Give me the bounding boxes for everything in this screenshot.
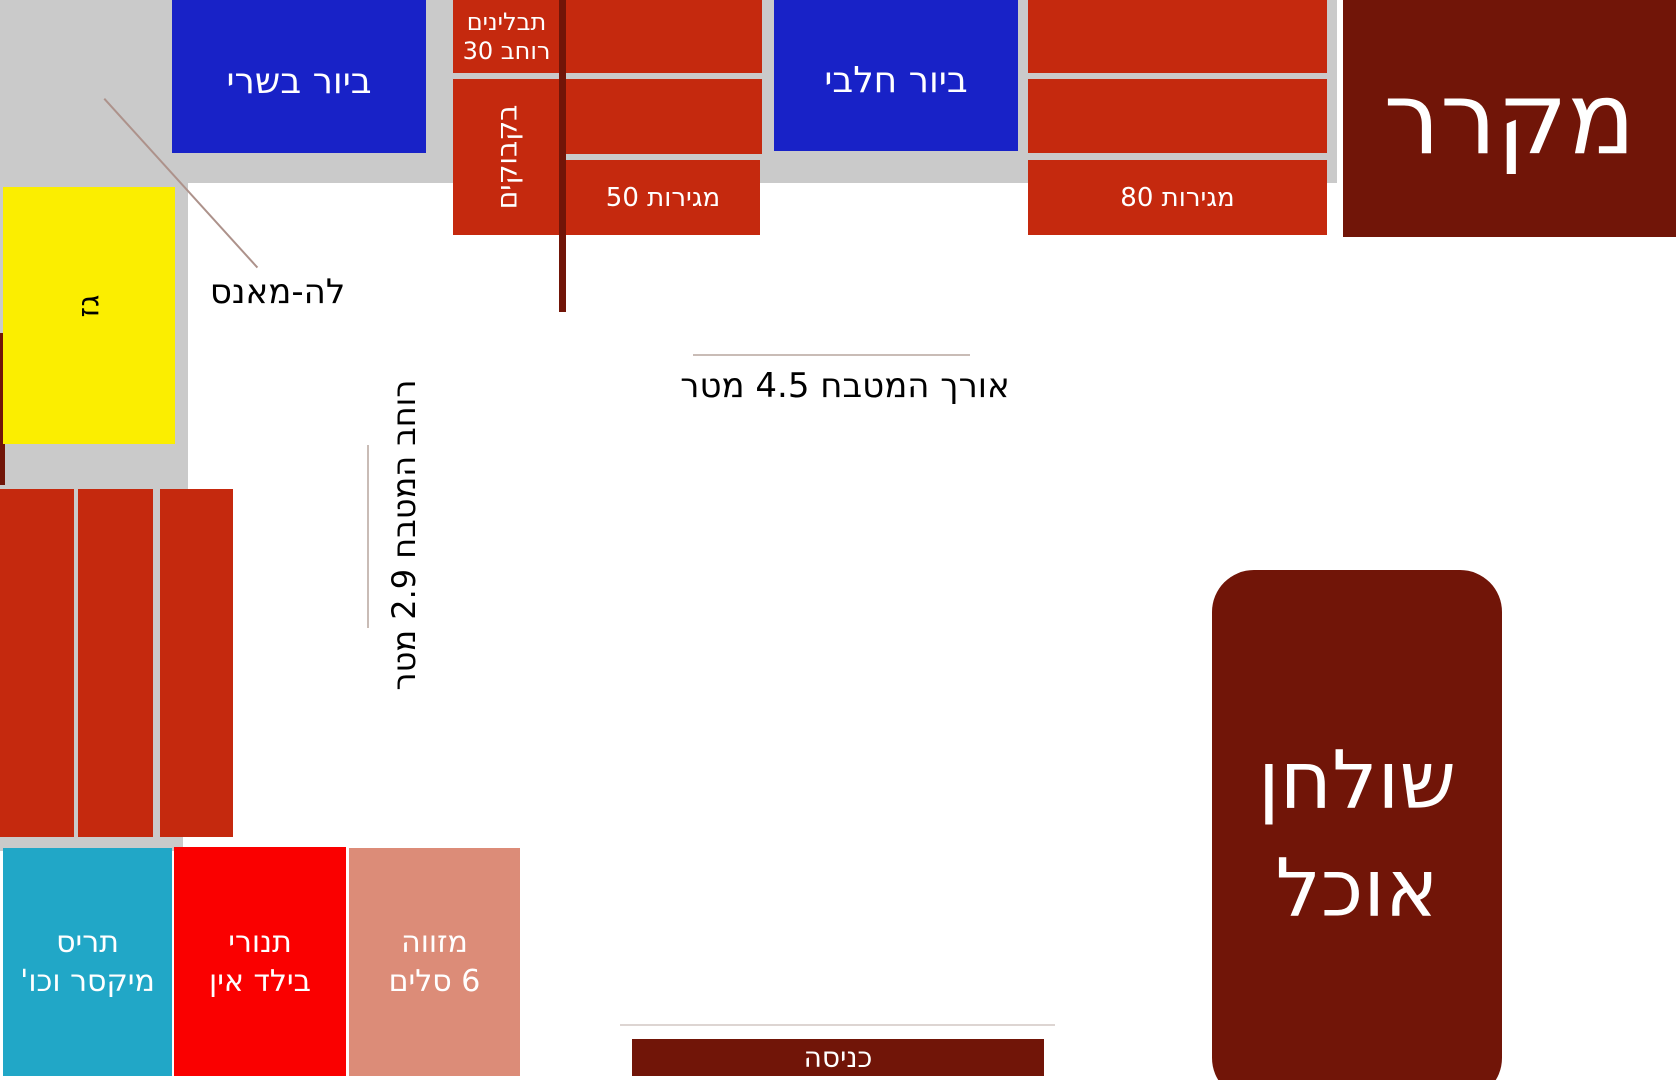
drawers-80-box: מגירות 80 [1028, 160, 1327, 235]
dining-table: שולחן אוכל [1212, 570, 1502, 1080]
ovens-label-line1: תנורי [228, 923, 292, 962]
entrance-bar: כניסה [632, 1039, 1044, 1076]
drawers-80-label: מגירות 80 [1120, 183, 1234, 213]
pantry-label-line2: 6 סלים [389, 962, 481, 1001]
length-dimension-line [693, 354, 970, 356]
bottles-cabinet-label: בקבוקים [491, 105, 524, 210]
width-dimension-label: רוחב המטבח 2.9 מטר [385, 380, 423, 691]
ovens-label-line2: בילד אין [209, 962, 311, 1001]
entrance-label: כניסה [804, 1041, 873, 1074]
cabinet-row-a1 [566, 0, 762, 73]
pantry-box: מזווה 6 סלים [349, 848, 520, 1076]
tall-cabinet-3 [160, 489, 233, 837]
shutter-mixer-box: תריס מיקסר וכו' [3, 848, 172, 1076]
pantry-label-line1: מזווה [401, 923, 468, 962]
fridge-box: מקרר [1343, 0, 1676, 237]
cabinet-row-a2 [566, 79, 762, 154]
dining-table-label-line1: שולחן [1258, 727, 1456, 835]
cabinet-row-b1 [1028, 0, 1327, 73]
shutter-label-line1: תריס [56, 923, 119, 962]
meat-sink-label: ביור בשרי [226, 61, 371, 102]
dairy-sink-label: ביור חלבי [824, 60, 967, 101]
spices-cabinet-box: תבלינים רוחב 30 [453, 0, 560, 73]
dairy-sink-box: ביור חלבי [774, 0, 1018, 151]
tall-cabinet-1 [0, 489, 74, 837]
meat-sink-box: ביור בשרי [172, 0, 426, 153]
le-mans-label: לה-מאנס [205, 272, 350, 312]
length-dimension-label: אורך המטבח 4.5 מטר [660, 366, 1030, 406]
cabinet-row-b2 [1028, 79, 1327, 153]
width-dimension-line [367, 445, 369, 628]
drawers-50-box: מגירות 50 [566, 160, 760, 235]
tall-cabinet-2 [78, 489, 153, 837]
fridge-label: מקרר [1384, 60, 1636, 177]
gas-hob-label: גז [72, 295, 107, 318]
partition-line [559, 0, 566, 312]
built-in-ovens-box: תנורי בילד אין [174, 847, 346, 1076]
entrance-swing-line [620, 1024, 1055, 1026]
spices-label-line2: רוחב 30 [463, 37, 551, 66]
shutter-label-line2: מיקסר וכו' [20, 962, 155, 1001]
spices-label-line1: תבלינים [467, 8, 547, 37]
kitchen-floor-plan: גז ביור בשרי תבלינים רוחב 30 בקבוקים מגי… [0, 0, 1676, 1080]
drawers-50-label: מגירות 50 [606, 183, 720, 213]
dining-table-label-line2: אוכל [1275, 835, 1438, 943]
